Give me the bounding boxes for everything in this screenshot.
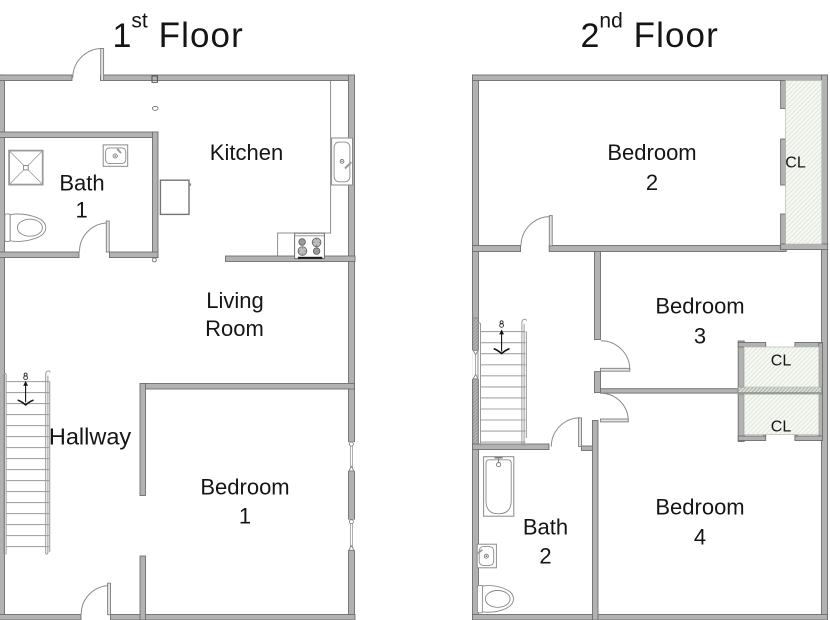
svg-text:1st Floor: 1st Floor	[113, 10, 244, 55]
svg-text:2: 2	[539, 544, 551, 569]
svg-text:CL: CL	[771, 353, 792, 370]
svg-text:3: 3	[694, 324, 706, 349]
svg-text:CL: CL	[771, 419, 792, 436]
svg-text:2nd Floor: 2nd Floor	[581, 10, 719, 55]
svg-text:Kitchen: Kitchen	[210, 140, 283, 165]
svg-text:Hallway: Hallway	[49, 424, 132, 450]
svg-text:1: 1	[239, 504, 251, 529]
svg-text:Bedroom: Bedroom	[655, 495, 744, 520]
svg-text:CL: CL	[785, 155, 806, 172]
svg-text:Bedroom: Bedroom	[607, 140, 696, 165]
svg-text:2: 2	[646, 170, 658, 195]
svg-text:Bedroom: Bedroom	[200, 475, 289, 500]
svg-text:1: 1	[75, 198, 87, 223]
svg-text:4: 4	[694, 525, 706, 550]
svg-text:Bath: Bath	[523, 515, 568, 540]
svg-text:Bath: Bath	[59, 171, 104, 196]
svg-text:Room: Room	[205, 316, 264, 341]
svg-text:Living: Living	[206, 288, 263, 313]
svg-text:Bedroom: Bedroom	[655, 294, 744, 319]
